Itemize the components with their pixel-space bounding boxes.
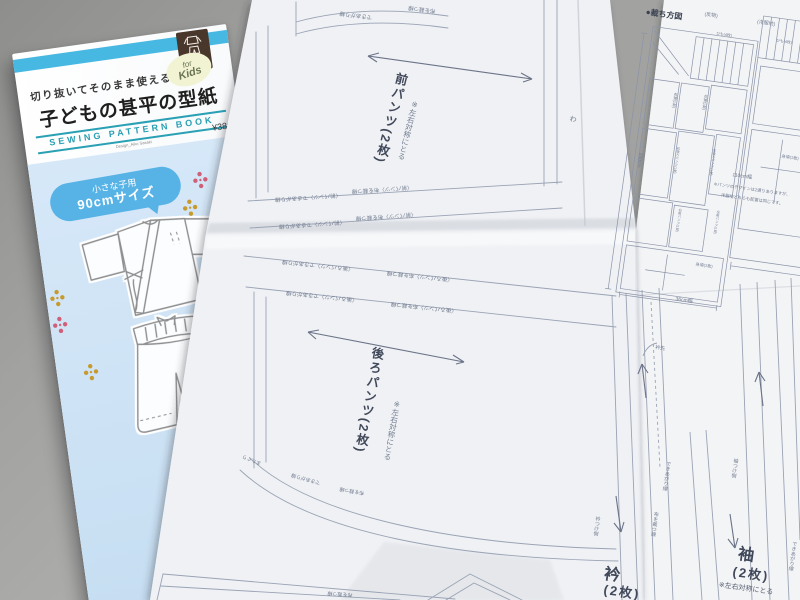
cutting-dim-left: 250cm (635, 152, 642, 168)
fold-mark: わ (569, 116, 577, 124)
photo-scene: 型紙BOOK 切り抜いてそのまま使える! for Kids 子どもの甚平の型紙 … (0, 0, 800, 600)
sleeve-piece-name: 袖 (737, 547, 757, 565)
bottom-piece-cut-label: 布を裁つ線 (327, 590, 352, 597)
collar-piece-count: (2枚) (603, 583, 641, 600)
